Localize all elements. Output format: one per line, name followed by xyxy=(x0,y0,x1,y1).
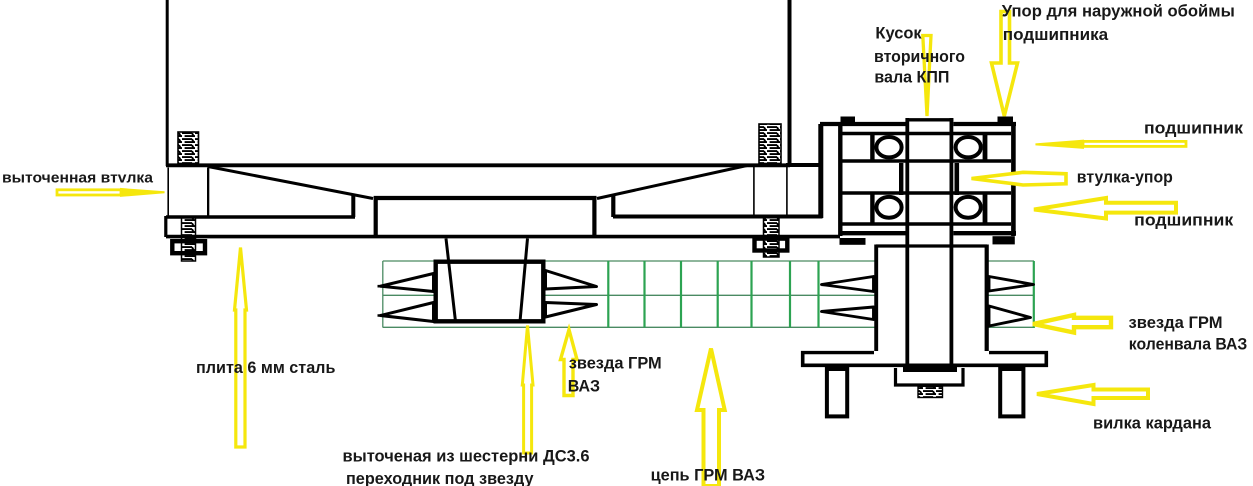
svg-text:ВАЗ: ВАЗ xyxy=(568,377,600,396)
svg-text:подшипник: подшипник xyxy=(1134,211,1234,230)
svg-text:Упор для наружной обоймы: Упор для наружной обоймы xyxy=(1002,1,1235,20)
svg-text:коленвала ВАЗ: коленвала ВАЗ xyxy=(1129,334,1248,353)
svg-text:выточенная втvлка: выточенная втvлка xyxy=(2,169,154,186)
svg-text:плита 6 мм сталь: плита 6 мм сталь xyxy=(196,358,335,377)
svg-text:Кусок: Кусок xyxy=(875,24,922,43)
svg-text:звезда ГРМ: звезда ГРМ xyxy=(1129,313,1223,332)
svg-text:вторичного: вторичного xyxy=(874,47,965,66)
svg-text:переходник под звезду: переходник под звезду xyxy=(346,469,534,486)
svg-text:вала КПП: вала КПП xyxy=(874,68,949,87)
svg-text:выточеная из шестерни ДС3.6: выточеная из шестерни ДС3.6 xyxy=(343,447,590,466)
svg-text:звезда ГРМ: звезда ГРМ xyxy=(569,354,662,373)
svg-text:втулка-упор: втулка-упор xyxy=(1077,167,1173,186)
svg-text:цепь ГРМ ВАЗ: цепь ГРМ ВАЗ xyxy=(651,466,766,485)
svg-text:вилка кардана: вилка кардана xyxy=(1093,413,1212,432)
svg-text:подшипник: подшипник xyxy=(1144,119,1244,138)
svg-text:подшипника: подшипника xyxy=(1003,25,1109,44)
